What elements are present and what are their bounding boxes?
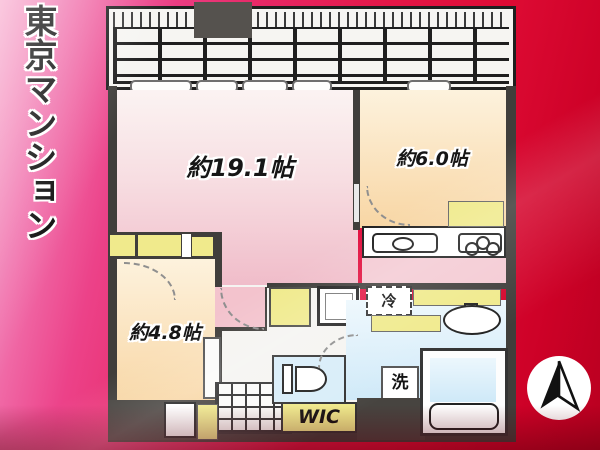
burner: [465, 242, 479, 256]
structural-pillar: [194, 2, 252, 38]
counter: [371, 315, 441, 332]
washbasin-icon: [443, 305, 501, 335]
toilet-icon: [295, 366, 327, 392]
stove-icon: [458, 233, 502, 253]
sliding-door: [354, 184, 359, 222]
room-label-service: 約6.0帖: [366, 144, 498, 171]
bathtub-icon: [429, 403, 499, 430]
bathroom-floor: [430, 358, 496, 402]
floor-plan: 冷 洗 WIC: [104, 2, 518, 442]
burner: [486, 242, 500, 256]
closet: [192, 237, 213, 256]
counter: [448, 201, 504, 227]
room-label-bedroom: 約4.8帖: [115, 318, 215, 345]
flyer: 東京マンション: [0, 0, 600, 450]
room-label-living: 約19.1帖: [140, 148, 340, 183]
kitchen-counter: [362, 226, 506, 258]
wall-block-bottom-left: [108, 400, 215, 440]
shoe-cabinet: [197, 404, 218, 440]
balcony-railing-hatch: [113, 12, 509, 29]
property-title: 東京マンション: [3, 4, 55, 260]
counter: [413, 289, 501, 306]
balcony-railing-grid: [113, 29, 509, 84]
bathroom: [420, 348, 508, 436]
balcony: [106, 6, 516, 90]
refrigerator-space: 冷: [366, 286, 412, 316]
wall-left: [108, 86, 117, 440]
laundry-space: 洗: [381, 366, 419, 400]
north-compass-icon: [526, 355, 592, 421]
kitchen-sink-icon: [372, 233, 438, 253]
wall-block: [357, 398, 425, 440]
wic-label: WIC: [281, 402, 357, 433]
sink-bowl: [392, 237, 414, 251]
closet: [110, 235, 135, 256]
door-panel: [164, 402, 196, 438]
closet-row: [108, 232, 215, 259]
closet-divider: [182, 234, 191, 257]
closet: [138, 235, 181, 256]
toilet-tank: [282, 364, 293, 394]
storage-box: [269, 287, 311, 327]
